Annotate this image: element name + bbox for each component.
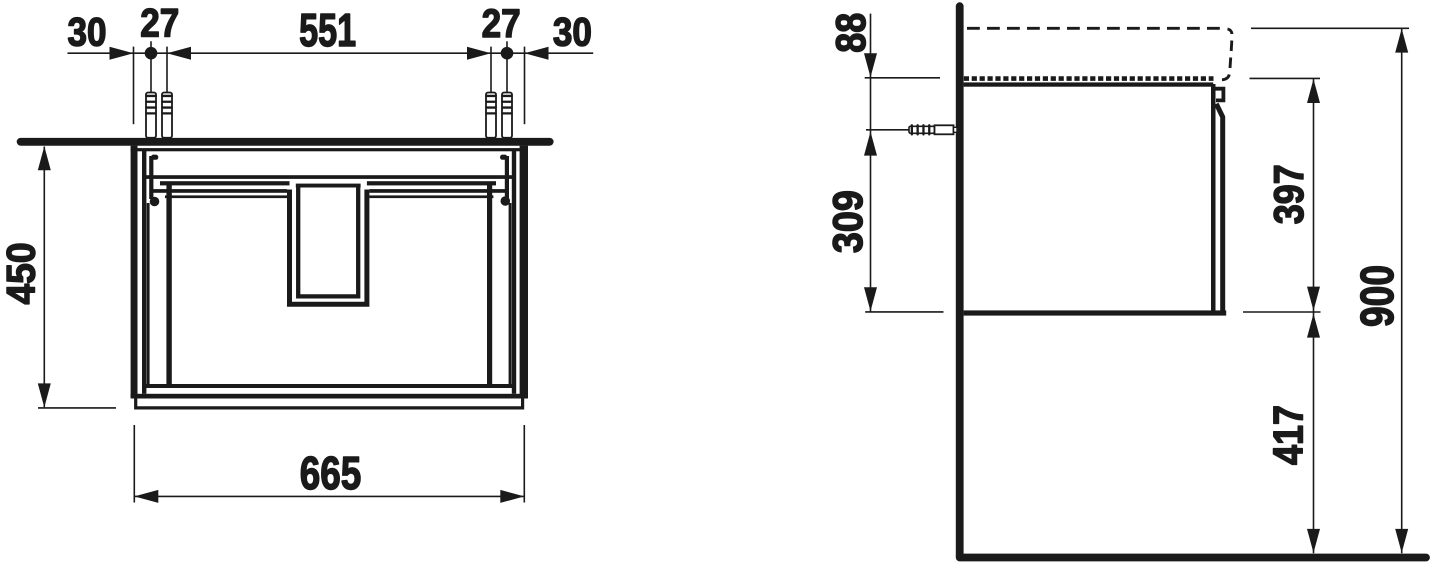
- svg-text:397: 397: [1265, 164, 1312, 224]
- svg-text:551: 551: [299, 4, 356, 56]
- svg-text:450: 450: [0, 243, 43, 305]
- svg-text:88: 88: [827, 13, 874, 53]
- svg-text:30: 30: [553, 10, 592, 54]
- svg-text:665: 665: [300, 447, 362, 499]
- svg-text:417: 417: [1265, 405, 1312, 465]
- svg-text:27: 27: [482, 2, 521, 46]
- svg-text:30: 30: [68, 10, 107, 54]
- svg-text:900: 900: [1351, 265, 1403, 327]
- svg-text:27: 27: [140, 1, 179, 45]
- svg-text:309: 309: [824, 190, 871, 253]
